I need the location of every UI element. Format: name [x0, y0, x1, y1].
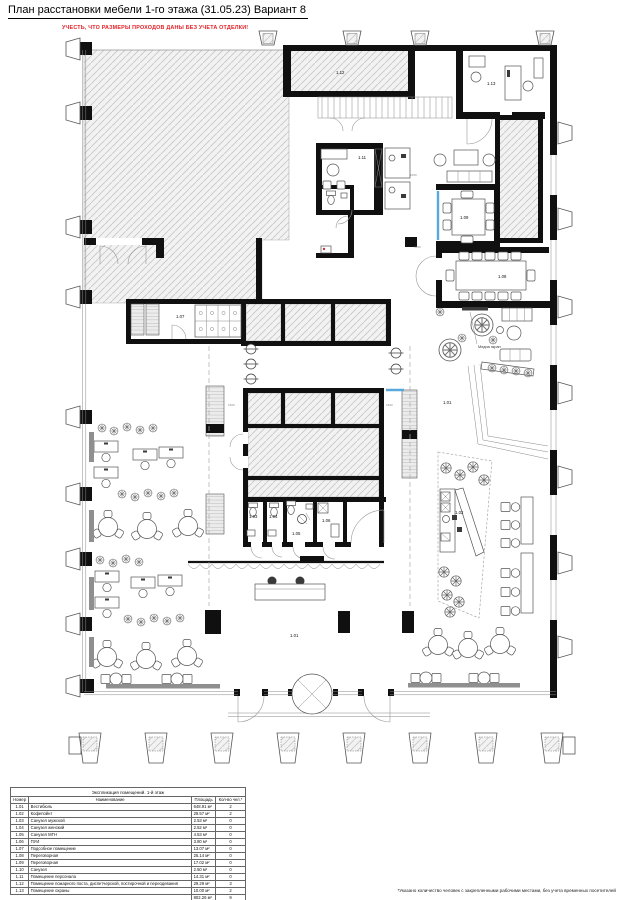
core-cell	[285, 304, 331, 341]
schedule-row: 1.04Санузел женский2.52 м²0	[11, 825, 246, 832]
schedule-cell: 1.04	[11, 825, 29, 832]
schedule-cell: 1.02	[11, 811, 29, 818]
dimension-label: 1500	[228, 403, 235, 407]
schedule-row: 1.10Санузел2.50 м²0	[11, 867, 246, 874]
dimension-label: 1050	[410, 173, 417, 177]
schedule-row: 1.06ПУИ3.80 м²0	[11, 839, 246, 846]
schedule-cell	[11, 895, 192, 900]
schedule-cell: 0	[216, 860, 246, 867]
schedule-cell: 1.07	[11, 846, 29, 853]
media-screen-annotation: Медиа экран	[478, 345, 501, 349]
schedule-cell: Переговорная	[29, 860, 192, 867]
room-schedule: Экспликация помещений. 1-й этажНомерНаим…	[10, 787, 248, 900]
glass-partition	[386, 191, 438, 390]
schedule-cell: 2	[216, 888, 246, 895]
schedule-cell: 0	[216, 867, 246, 874]
room-label-1-01b: 1.01	[290, 633, 299, 638]
schedule-cell: 3.80 м²	[192, 839, 216, 846]
schedule-cell: Площадь	[192, 797, 216, 804]
drawing-sheet: План расстановки мебели 1-го этажа (31.0…	[0, 0, 622, 900]
room-label-1-12: 1.12	[336, 70, 345, 75]
room-label-1-11: 1.11	[358, 155, 367, 160]
room-label-1-01: 1.01	[443, 400, 452, 405]
schedule-cell: 29.57 м²	[192, 811, 216, 818]
room-label-1-06: 1.06	[322, 518, 331, 523]
schedule-title: Экспликация помещений. 1-й этаж	[11, 788, 246, 797]
schedule-cell: Помещение персонала	[29, 874, 192, 881]
dimension-label: 1500	[386, 403, 393, 407]
schedule-cell: Вестибюль	[29, 804, 192, 811]
core-cell	[248, 480, 379, 497]
room-label-1-03: 1.03	[249, 514, 258, 519]
schedule-cell: 802.26 м²	[192, 895, 216, 900]
room-label-1-04: 1.04	[269, 514, 278, 519]
schedule-cell: 0	[216, 874, 246, 881]
schedule-cell: 17.02 м²	[192, 860, 216, 867]
schedule-row: 1.08Переговорная25.14 м²0	[11, 853, 246, 860]
schedule-cell: 1.13	[11, 888, 29, 895]
schedule-cell: 0	[216, 832, 246, 839]
schedule-cell: 25.14 м²	[192, 853, 216, 860]
schedule-cell: 14.31 м²	[192, 874, 216, 881]
schedule-cell: Наименование	[29, 797, 192, 804]
schedule-cell: Подсобное помещение	[29, 846, 192, 853]
schedule-cell: Помещение охраны	[29, 888, 192, 895]
schedule-cell: Кол-во чел.*	[216, 797, 246, 804]
schedule-cell: 1.06	[11, 839, 29, 846]
schedule-cell: 1.03	[11, 818, 29, 825]
schedule-row: 1.07Подсобное помещение13.07 м²0	[11, 846, 246, 853]
room-label-1-07: 1.07	[176, 314, 185, 319]
schedule-cell: Переговорная	[29, 853, 192, 860]
room-1-12-floor	[289, 48, 410, 95]
room-label-1-09: 1.09	[460, 215, 469, 220]
schedule-row: 1.01Вестибюль648.91 м²2	[11, 804, 246, 811]
schedule-row: 1.11Помещение персонала14.31 м²0	[11, 874, 246, 881]
room-label-1-05: 1.05	[292, 531, 301, 536]
schedule-cell: 2.53 м²	[192, 818, 216, 825]
schedule-row: 1.03Санузел мужской2.53 м²0	[11, 818, 246, 825]
schedule-cell: 29.29 м²	[192, 881, 216, 888]
schedule-cell: 0	[216, 846, 246, 853]
schedule-row: 1.02Кофепойнт29.57 м²2	[11, 811, 246, 818]
schedule-cell: 0	[216, 818, 246, 825]
schedule-row: 1.13Помещение охраны10.00 м²2	[11, 888, 246, 895]
room-label-1-13: 1.13	[487, 81, 496, 86]
schedule-cell: Помещение пожарного поста, диспетчерской…	[29, 881, 192, 888]
schedule-row: 1.12Помещение пожарного поста, диспетчер…	[11, 881, 246, 888]
schedule-row: 1.05Санузел МГН4.53 м²0	[11, 832, 246, 839]
schedule-cell: Санузел МГН	[29, 832, 192, 839]
core-cell	[246, 304, 281, 341]
core-cell	[248, 393, 281, 424]
schedule-cell: 2	[216, 804, 246, 811]
schedule-row: 1.09Переговорная17.02 м²0	[11, 860, 246, 867]
schedule-cell: 648.91 м²	[192, 804, 216, 811]
schedule-cell: ПУИ	[29, 839, 192, 846]
schedule-cell: 1.01	[11, 804, 29, 811]
dimension-label: 1050	[414, 245, 421, 249]
schedule-cell: 13.07 м²	[192, 846, 216, 853]
schedule-cell: 0	[216, 853, 246, 860]
room-schedule-table: Экспликация помещений. 1-й этажНомерНаим…	[10, 787, 246, 900]
schedule-cell: 2	[216, 811, 246, 818]
room-label-1-08: 1.08	[498, 274, 507, 279]
schedule-cell: 1.10	[11, 867, 29, 874]
schedule-cell: 1.05	[11, 832, 29, 839]
schedule-cell: Кофепойнт	[29, 811, 192, 818]
schedule-cell: 0	[216, 839, 246, 846]
room-label-1-02: 1.02	[455, 510, 464, 515]
schedule-cell: Санузел женский	[29, 825, 192, 832]
schedule-cell: 0	[216, 825, 246, 832]
schedule-cell: 3	[216, 881, 246, 888]
floor-plan-drawing: 1.12 1.13 1.11 1.09 1.08 1.07 1.01 1.02 …	[0, 0, 622, 770]
schedule-cell: Номер	[11, 797, 29, 804]
core-cell	[335, 393, 379, 424]
core-cell	[285, 393, 331, 424]
schedule-cell: 1.08	[11, 853, 29, 860]
schedule-cell: 4.53 м²	[192, 832, 216, 839]
core-cell	[248, 428, 379, 476]
staircase	[318, 97, 452, 118]
schedule-cell: Санузел мужской	[29, 818, 192, 825]
core-cell	[335, 304, 386, 341]
schedule-cell: 10.00 м²	[192, 888, 216, 895]
schedule-cell: 1.09	[11, 860, 29, 867]
schedule-cell: Санузел	[29, 867, 192, 874]
schedule-total-row: 802.26 м²9	[11, 895, 246, 900]
shaft-hatch	[499, 119, 539, 239]
schedule-cell: 1.12	[11, 881, 29, 888]
schedule-cell: 1.11	[11, 874, 29, 881]
schedule-cell: 2.50 м²	[192, 867, 216, 874]
schedule-cell: 2.52 м²	[192, 825, 216, 832]
schedule-cell: 9	[216, 895, 246, 900]
footnote: *Указано количество человек с закрепленн…	[397, 888, 616, 893]
